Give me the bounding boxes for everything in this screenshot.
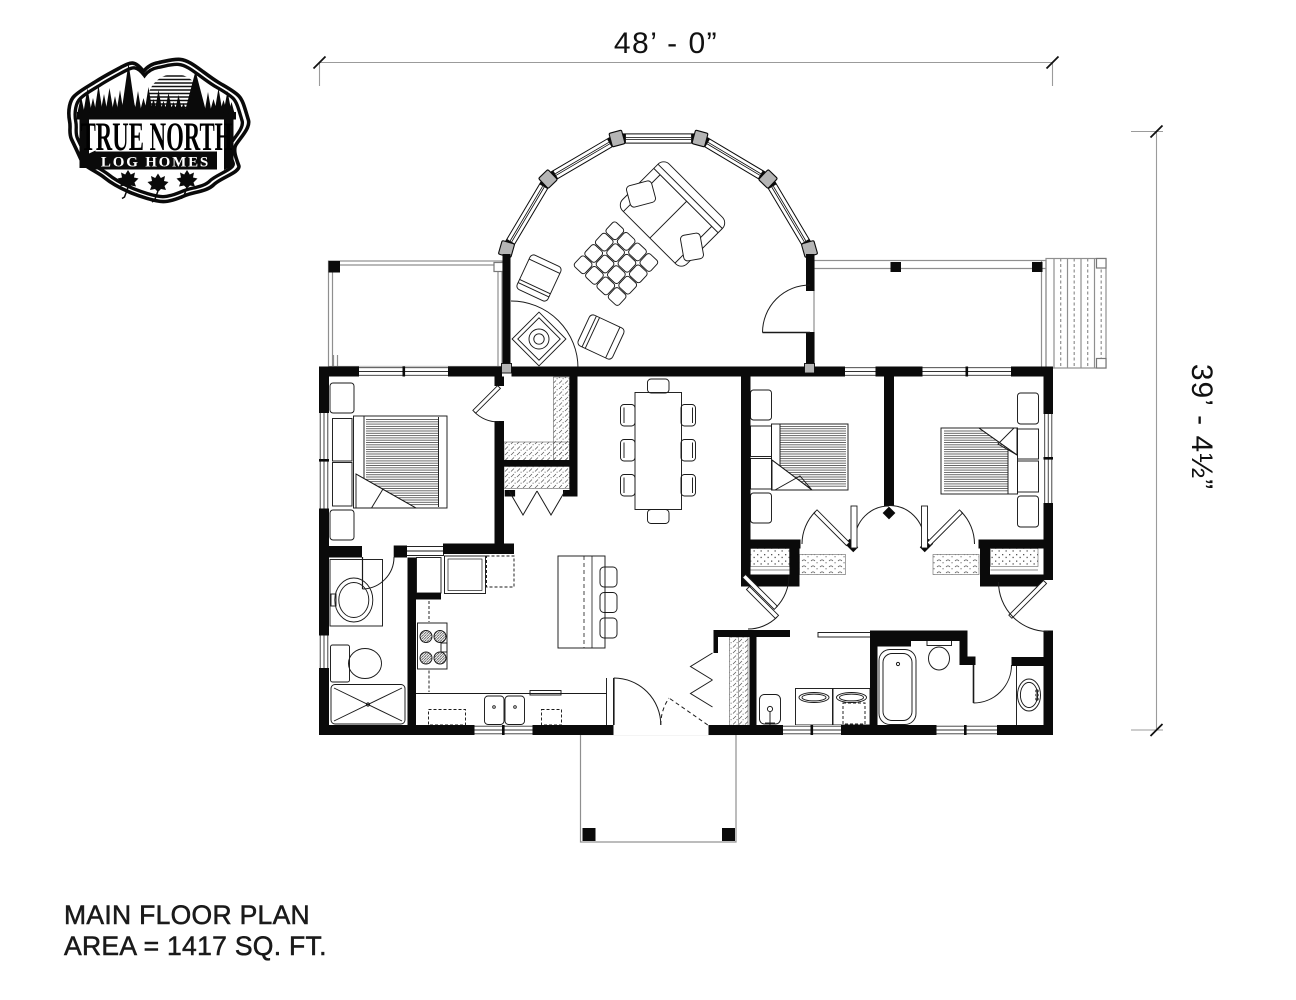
svg-text:AREA = 1417 SQ. FT.: AREA = 1417 SQ. FT. bbox=[64, 931, 327, 961]
svg-text:LOG HOMES: LOG HOMES bbox=[101, 155, 210, 171]
svg-text:48’ - 0”: 48’ - 0” bbox=[614, 27, 718, 60]
svg-text:39’ - 4½”: 39’ - 4½” bbox=[1185, 364, 1218, 490]
svg-text:MAIN FLOOR PLAN: MAIN FLOOR PLAN bbox=[64, 900, 310, 930]
